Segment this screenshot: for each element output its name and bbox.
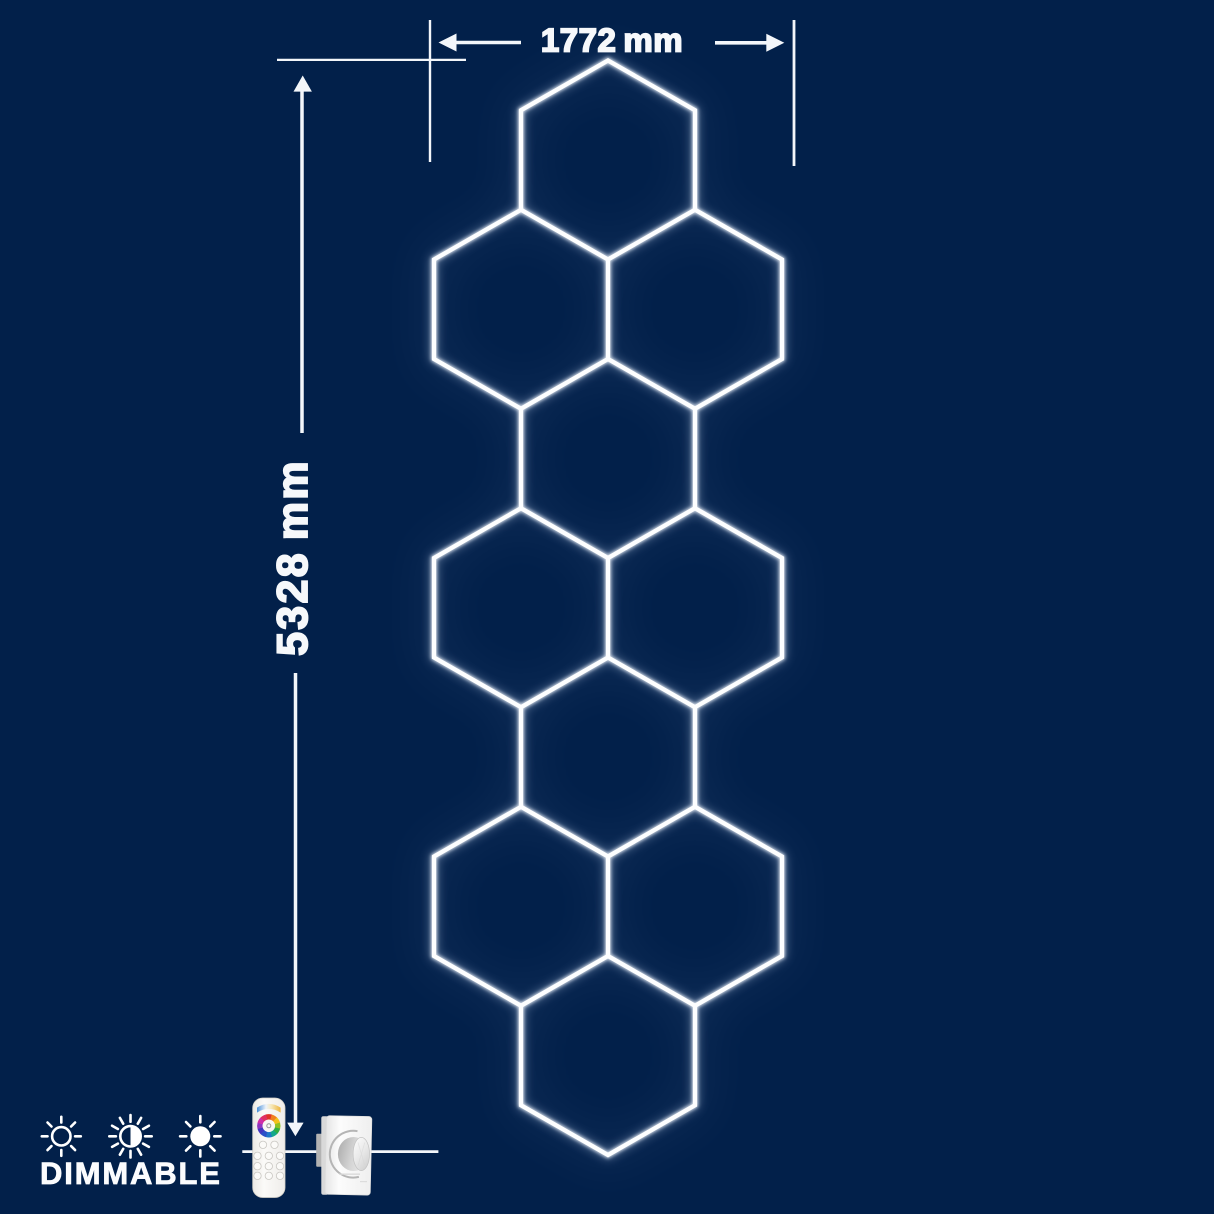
svg-text:1772 mm: 1772 mm	[541, 22, 683, 59]
svg-text:5328 mm: 5328 mm	[269, 459, 317, 656]
svg-text:DIMMABLE: DIMMABLE	[40, 1156, 222, 1191]
